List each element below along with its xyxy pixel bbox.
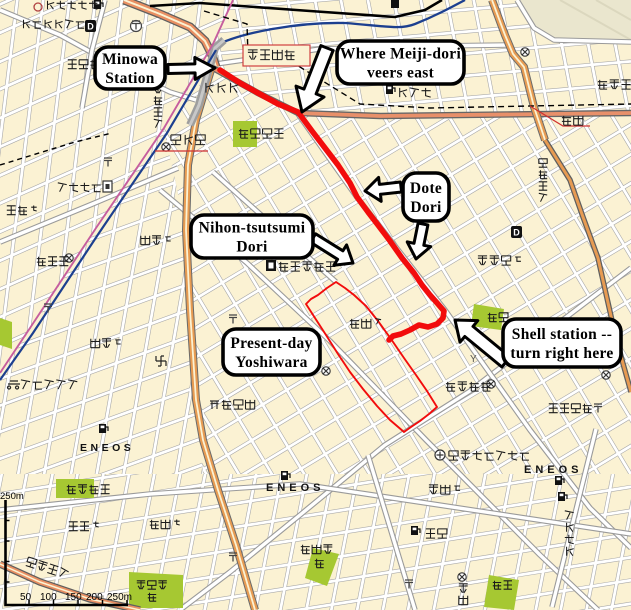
svg-text:ENEOS: ENEOS — [80, 442, 134, 454]
svg-text:Yoshiwara: Yoshiwara — [235, 354, 307, 371]
svg-text:Minowa: Minowa — [102, 51, 158, 68]
svg-text:200: 200 — [86, 592, 103, 603]
svg-text:Y: Y — [470, 354, 477, 365]
svg-text:Present-day: Present-day — [230, 335, 312, 352]
svg-text:turn right here: turn right here — [510, 345, 613, 362]
svg-text:250m: 250m — [0, 491, 24, 502]
svg-text:D: D — [87, 22, 94, 32]
svg-text:veers east: veers east — [367, 64, 435, 81]
svg-text:150: 150 — [65, 592, 82, 603]
svg-text:Where Meiji-dori: Where Meiji-dori — [340, 45, 462, 62]
svg-text:D: D — [513, 228, 520, 238]
svg-text:Station: Station — [105, 70, 155, 87]
svg-text:Dori: Dori — [410, 199, 442, 216]
svg-text:Dori: Dori — [236, 238, 268, 255]
svg-text:250m: 250m — [107, 592, 132, 603]
svg-text:50: 50 — [20, 592, 32, 603]
svg-text:Shell station --: Shell station -- — [512, 326, 612, 343]
svg-text:ENEOS: ENEOS — [524, 464, 583, 476]
svg-text:Dote: Dote — [410, 180, 442, 197]
svg-text:Nihon-tsutsumi: Nihon-tsutsumi — [199, 219, 306, 236]
svg-text:ENEOS: ENEOS — [266, 482, 325, 494]
svg-text:100: 100 — [40, 592, 57, 603]
